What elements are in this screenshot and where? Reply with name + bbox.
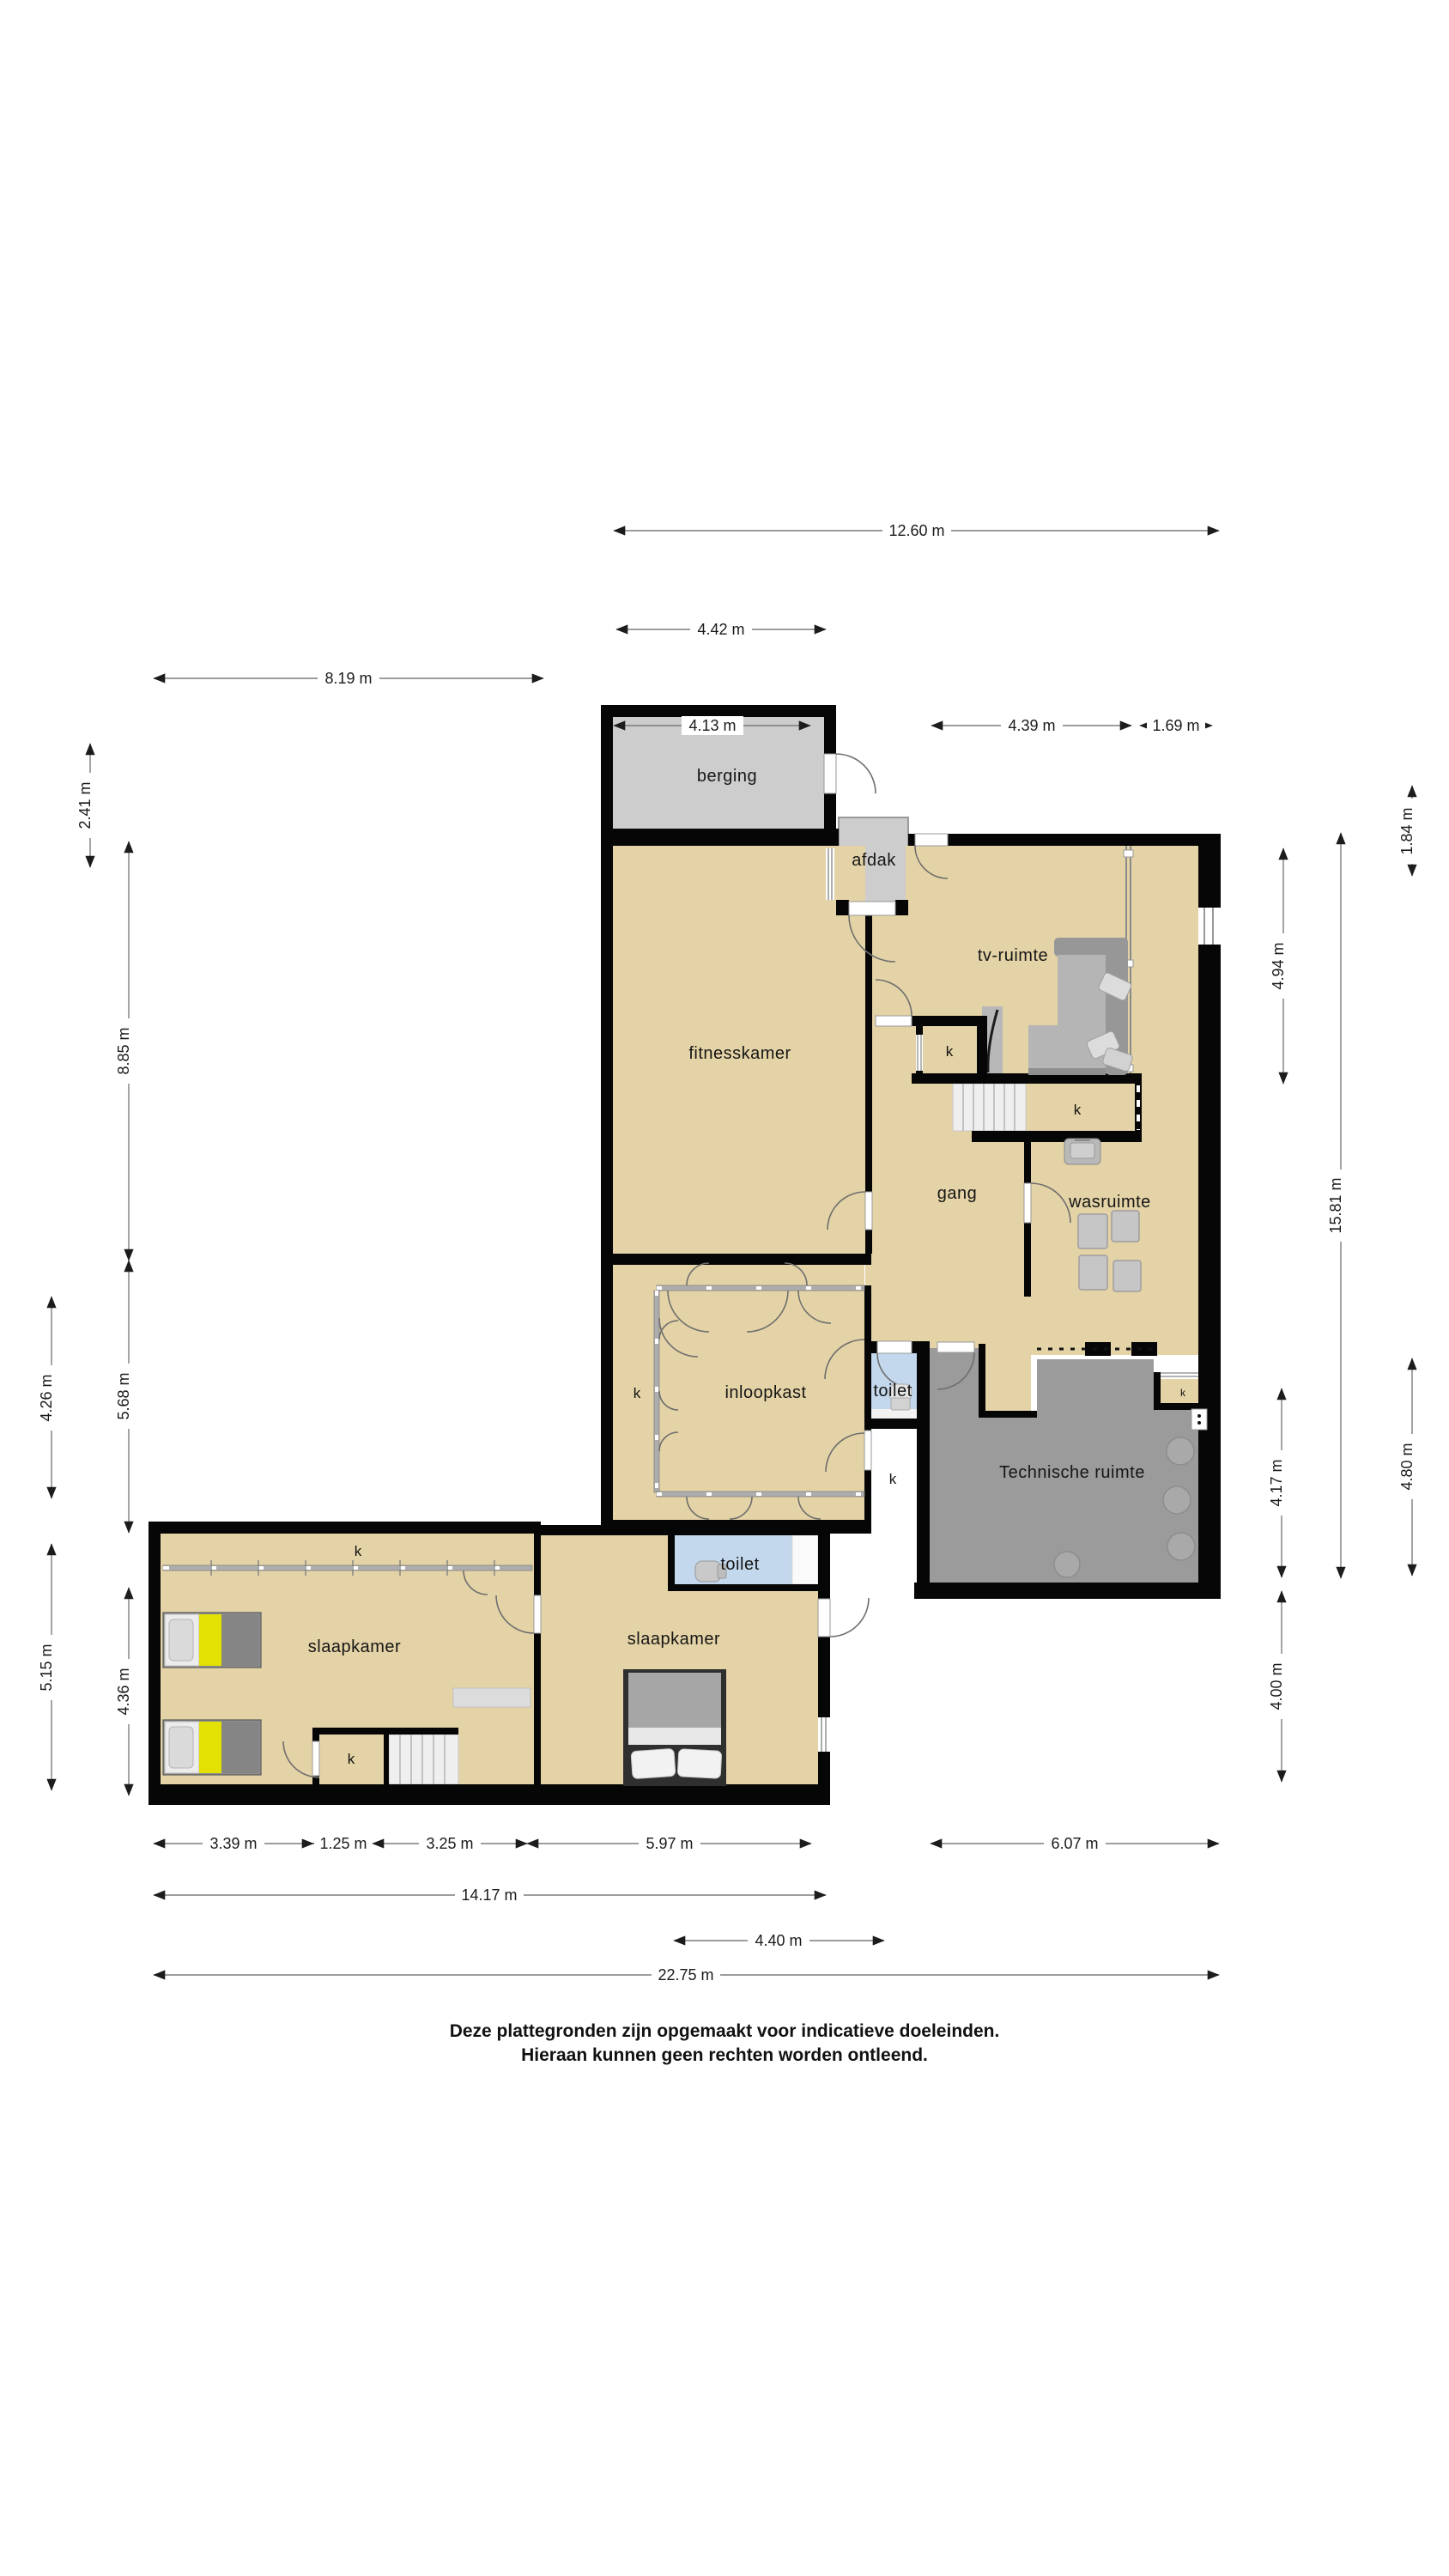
svg-text:3.25 m: 3.25 m — [426, 1835, 473, 1852]
closet-label-k3: k — [1180, 1387, 1186, 1399]
floors — [161, 717, 1198, 1784]
dim-4-39: 4.39 m — [931, 716, 1131, 735]
dim-22-75: 22.75 m — [154, 1965, 1219, 1984]
room-label-toilet-boven: toilet — [873, 1382, 912, 1400]
svg-text:4.00 m: 4.00 m — [1268, 1662, 1285, 1710]
dim-8-19: 8.19 m — [154, 669, 543, 688]
svg-text:1.84 m: 1.84 m — [1398, 807, 1416, 854]
disclaimer-line-2: Hieraan kunnen geen rechten worden ontle… — [521, 2045, 928, 2065]
window-k1 — [916, 1035, 923, 1071]
dim-5-97: 5.97 m — [527, 1834, 811, 1853]
dimensions-left: 2.41 m 8.85 m 5.68 m 4.26 m 5.15 m 4.36 … — [38, 744, 138, 1795]
svg-text:4.39 m: 4.39 m — [1008, 717, 1055, 734]
room-label-afdak: afdak — [852, 851, 896, 870]
dim-3-25: 3.25 m — [373, 1834, 527, 1853]
svg-text:4.36 m: 4.36 m — [115, 1668, 132, 1715]
svg-text:4.80 m: 4.80 m — [1398, 1443, 1416, 1490]
svg-text:4.13 m: 4.13 m — [688, 717, 736, 734]
bed-single-1 — [163, 1613, 261, 1668]
svg-text:8.19 m: 8.19 m — [324, 670, 372, 687]
room-label-toilet-onder: toilet — [720, 1555, 759, 1574]
closet-label-k5: k — [889, 1471, 897, 1487]
dim-1-69: 1.69 m — [1140, 716, 1212, 735]
toilet-boven-sill — [870, 1409, 917, 1419]
dresser — [453, 1688, 530, 1707]
svg-text:4.42 m: 4.42 m — [697, 621, 744, 638]
dim-4-36: 4.36 m — [115, 1588, 138, 1795]
svg-text:8.85 m: 8.85 m — [115, 1027, 132, 1074]
svg-text:5.15 m: 5.15 m — [38, 1643, 55, 1691]
floorplan-page: berging afdak fitnesskamer tv-ruimte gan… — [0, 0, 1449, 2576]
svg-text:4.40 m: 4.40 m — [755, 1932, 802, 1949]
window-tv-right-wall — [1198, 908, 1221, 945]
dim-4-26: 4.26 m — [38, 1297, 61, 1498]
dim-4-00: 4.00 m — [1268, 1591, 1291, 1782]
closet-label-k4: k — [634, 1385, 641, 1401]
svg-text:4.17 m: 4.17 m — [1268, 1459, 1285, 1506]
room-label-wasruimte: wasruimte — [1068, 1193, 1151, 1212]
svg-text:1.69 m: 1.69 m — [1152, 717, 1199, 734]
dim-6-07: 6.07 m — [931, 1834, 1219, 1853]
room-label-fitnesskamer: fitnesskamer — [688, 1044, 791, 1063]
room-label-slaapkamer-links: slaapkamer — [308, 1637, 401, 1656]
dimensions-bottom: 3.39 m 1.25 m 3.25 m 5.97 m 6.07 m 14.17… — [154, 1834, 1219, 1984]
floorplan-drawing: berging afdak fitnesskamer tv-ruimte gan… — [0, 0, 1449, 2576]
window-tech-alcove — [1161, 1370, 1198, 1379]
electrical-panel — [1191, 1409, 1207, 1430]
svg-text:5.68 m: 5.68 m — [115, 1372, 132, 1419]
closet-label-k1: k — [946, 1043, 954, 1060]
dim-15-81: 15.81 m — [1327, 833, 1350, 1578]
door-slaapkamer-rechts-exit — [818, 1598, 869, 1637]
dim-5-68: 5.68 m — [115, 1261, 138, 1533]
stairs-lower — [389, 1735, 458, 1784]
closet-label-k2: k — [1074, 1102, 1082, 1118]
svg-text:4.94 m: 4.94 m — [1270, 942, 1287, 989]
disclaimer: Deze plattegronden zijn opgemaakt voor i… — [450, 2021, 1000, 2065]
dim-4-17: 4.17 m — [1268, 1388, 1291, 1577]
room-label-gang: gang — [937, 1184, 978, 1203]
svg-text:5.97 m: 5.97 m — [646, 1835, 693, 1852]
room-label-inloopkast: inloopkast — [724, 1383, 806, 1402]
room-label-berging: berging — [697, 767, 757, 786]
dim-2-41: 2.41 m — [76, 744, 100, 867]
disclaimer-line-1: Deze plattegronden zijn opgemaakt voor i… — [450, 2021, 1000, 2041]
room-label-technische-ruimte: Technische ruimte — [999, 1463, 1145, 1482]
bed-double — [623, 1669, 726, 1786]
dim-4-94: 4.94 m — [1270, 848, 1293, 1084]
sink-wasruimte — [1064, 1139, 1100, 1164]
dim-14-17: 14.17 m — [154, 1886, 826, 1905]
svg-text:12.60 m: 12.60 m — [888, 522, 944, 539]
dim-12-60: 12.60 m — [614, 521, 1219, 540]
window-slaapkamer-rechts — [818, 1717, 830, 1752]
svg-text:4.26 m: 4.26 m — [38, 1374, 55, 1421]
svg-text:22.75 m: 22.75 m — [658, 1966, 713, 1984]
svg-text:14.17 m: 14.17 m — [461, 1886, 517, 1904]
dim-4-42: 4.42 m — [616, 620, 826, 639]
svg-text:3.39 m: 3.39 m — [209, 1835, 257, 1852]
room-label-slaapkamer-rechts: slaapkamer — [627, 1630, 720, 1649]
closet-label-k6: k — [355, 1543, 362, 1559]
svg-text:2.41 m: 2.41 m — [76, 781, 94, 829]
closet-label-k7: k — [348, 1751, 355, 1767]
door-berging — [824, 754, 876, 793]
bed-single-2 — [163, 1720, 261, 1775]
dim-1-84: 1.84 m — [1398, 786, 1422, 876]
svg-text:6.07 m: 6.07 m — [1051, 1835, 1098, 1852]
dim-1-25: 1.25 m — [313, 1834, 373, 1853]
dimensions-right: 1.84 m 4.94 m 15.81 m 4.17 m 4.80 m 4.00… — [1268, 786, 1422, 1782]
dim-8-85: 8.85 m — [115, 841, 138, 1261]
svg-text:15.81 m: 15.81 m — [1327, 1177, 1344, 1233]
wasruimte-extension-floor — [985, 1340, 1031, 1411]
glass-afdak-side — [826, 848, 834, 900]
dim-5-15: 5.15 m — [38, 1544, 61, 1790]
dimensions-top: 12.60 m 4.42 m 8.19 m 4.13 m 4.39 m 1.69… — [154, 521, 1219, 735]
room-label-tv-ruimte: tv-ruimte — [978, 946, 1048, 965]
dim-4-40: 4.40 m — [674, 1931, 884, 1950]
toilet-onder-shower — [792, 1535, 818, 1584]
dim-3-39: 3.39 m — [154, 1834, 313, 1853]
svg-text:1.25 m: 1.25 m — [319, 1835, 367, 1852]
dim-4-80: 4.80 m — [1398, 1358, 1422, 1576]
